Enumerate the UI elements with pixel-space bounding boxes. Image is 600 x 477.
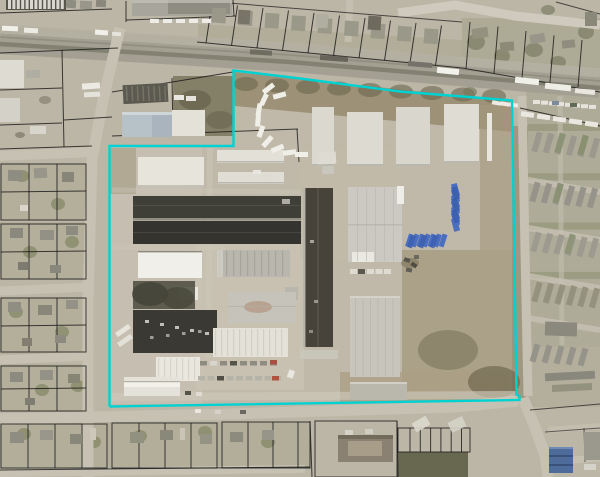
roof-rib <box>245 329 246 356</box>
trailer <box>255 114 261 126</box>
house <box>34 168 48 179</box>
driveway <box>180 428 185 440</box>
tree <box>541 5 555 15</box>
roof-edge <box>338 435 393 439</box>
white-building <box>172 110 205 136</box>
storage-unit-roof <box>26 0 29 9</box>
storage-unit-roof <box>12 0 15 9</box>
roof-ridge <box>133 205 301 206</box>
parked-car <box>195 409 201 413</box>
clutter <box>15 132 25 138</box>
trailer <box>487 137 492 149</box>
roof-edge <box>138 251 202 253</box>
roof-seam <box>549 464 573 466</box>
storage-unit-roof <box>34 0 37 9</box>
roof-edge <box>138 185 204 187</box>
warehouse <box>0 60 24 88</box>
parked-car <box>230 361 237 366</box>
house <box>10 228 23 238</box>
parked-car <box>384 269 391 274</box>
parked-car <box>202 19 211 23</box>
storage-unit-roof <box>43 0 46 9</box>
blue-gray-building <box>152 112 172 137</box>
roof-edge <box>397 186 404 204</box>
roof-rib <box>251 329 252 356</box>
roof-rib <box>281 329 282 356</box>
roof-rib <box>158 358 159 380</box>
rooftop-unit <box>310 240 314 243</box>
shed <box>20 205 28 211</box>
parked-car <box>240 361 247 366</box>
site-driveway <box>113 247 225 248</box>
parked-car <box>240 410 246 414</box>
roof-edge <box>303 188 306 347</box>
roof-rib <box>233 251 234 276</box>
house <box>423 28 438 44</box>
parked-car <box>198 376 205 381</box>
house <box>262 430 274 440</box>
building-section <box>350 382 407 400</box>
blue-roof-building <box>549 447 573 473</box>
roof-rib <box>170 358 171 380</box>
rail-car <box>112 32 121 37</box>
roof-rib <box>233 329 234 356</box>
shed <box>584 464 596 470</box>
storage-unit-roof <box>8 0 11 9</box>
parked-car <box>227 376 234 381</box>
trees <box>132 282 168 306</box>
white-building <box>138 252 202 278</box>
roof-rib <box>261 251 262 276</box>
roof-edge <box>124 381 180 382</box>
large-dark-building <box>133 310 217 353</box>
roof-rib <box>240 251 241 276</box>
cross-street <box>0 152 92 156</box>
roof-rib <box>275 251 276 276</box>
roof-edge <box>132 0 232 3</box>
roof-edge <box>350 296 400 298</box>
rooftop-unit <box>282 199 290 204</box>
rooftop-unit <box>145 320 149 323</box>
roof-rib <box>257 329 258 356</box>
roof-rib <box>221 329 222 356</box>
tree <box>65 236 79 248</box>
parked-car <box>246 376 253 381</box>
parked-car <box>367 269 374 274</box>
gray-building <box>584 432 600 460</box>
house <box>40 430 53 440</box>
roof-rib <box>275 329 276 356</box>
roof-section <box>352 252 374 262</box>
parked-car <box>176 19 185 23</box>
aerial-imagery <box>0 0 600 477</box>
roof-edge <box>217 161 284 163</box>
rooftop-unit <box>150 336 154 339</box>
parked-car <box>200 361 207 366</box>
house <box>66 0 77 8</box>
roof-gap <box>133 218 301 221</box>
roof-rib <box>268 251 269 276</box>
house <box>10 372 23 382</box>
warehouse <box>347 112 383 166</box>
clutter <box>39 96 51 104</box>
roof-rib <box>226 251 227 276</box>
roof-seam <box>385 298 386 376</box>
house <box>25 398 35 405</box>
house <box>316 14 329 29</box>
roof-edge <box>444 161 479 163</box>
roof-rib <box>176 358 177 380</box>
roof-rib <box>239 329 240 356</box>
roof-rib <box>215 329 216 356</box>
scrub-strip <box>480 105 512 250</box>
parked-car <box>272 376 279 381</box>
rooftop-unit <box>314 300 318 303</box>
trees <box>162 287 194 309</box>
house <box>66 300 78 309</box>
rail-car <box>95 30 108 36</box>
roof-seam <box>348 224 402 226</box>
dark-roof-building <box>133 196 301 218</box>
roof-rib <box>227 329 228 356</box>
warehouse <box>0 98 20 122</box>
rooftop-unit <box>182 332 186 335</box>
shed <box>365 429 373 434</box>
rooftop-unit <box>166 334 170 337</box>
roof-edge <box>396 164 430 166</box>
house <box>238 10 251 25</box>
roof-rib <box>182 358 183 380</box>
loading-dock <box>300 350 338 359</box>
roof-rib <box>269 329 270 356</box>
dark-ground-stain <box>418 330 478 370</box>
trailer <box>82 82 100 89</box>
trailer <box>186 96 196 101</box>
roof-edge <box>347 164 383 166</box>
roof-edge <box>350 382 407 384</box>
rooftop-unit <box>198 330 202 333</box>
house <box>211 8 226 24</box>
house <box>66 226 78 235</box>
shed <box>30 126 46 134</box>
courtyard <box>348 441 382 456</box>
parked-car <box>570 103 577 107</box>
house <box>40 230 54 240</box>
roof-edge <box>218 182 284 184</box>
site-driveway <box>112 190 300 192</box>
house <box>368 16 382 31</box>
house <box>160 430 173 440</box>
east-street <box>522 96 528 396</box>
parked-car <box>163 19 172 23</box>
ribbed-dark-building <box>123 83 169 104</box>
roof-edge <box>312 164 334 166</box>
shed <box>345 430 353 435</box>
trailer <box>487 113 492 125</box>
shed <box>322 166 334 175</box>
storage-unit-roof <box>52 0 55 9</box>
gray-building <box>545 321 577 336</box>
trailer <box>174 95 184 100</box>
brush <box>358 83 382 97</box>
storage-unit-roof <box>21 0 24 9</box>
roof-rib <box>194 358 195 380</box>
house <box>264 13 279 29</box>
house <box>344 21 359 37</box>
house <box>38 305 52 315</box>
wooded-area <box>398 452 468 477</box>
trailer <box>487 125 492 137</box>
house <box>50 265 61 273</box>
parked-car <box>552 101 559 105</box>
parked-car <box>260 361 267 366</box>
cross-street <box>0 356 89 360</box>
house <box>585 12 597 26</box>
ribbed-gray-building <box>217 250 290 277</box>
roof-seam <box>378 298 379 376</box>
house <box>291 15 306 31</box>
parked-car <box>208 376 215 381</box>
parked-car <box>581 104 588 108</box>
tree <box>35 384 49 396</box>
roof-edge <box>122 112 172 115</box>
storage-unit-roof <box>56 0 59 9</box>
parked-car <box>196 392 202 396</box>
warehouse <box>444 104 479 163</box>
roof-edge <box>549 447 573 449</box>
roof-rib <box>164 358 165 380</box>
canopy <box>124 383 180 387</box>
house <box>500 41 515 51</box>
parked-car <box>270 360 277 365</box>
house <box>70 434 82 444</box>
brush <box>296 80 320 94</box>
rooftop-unit <box>160 323 164 326</box>
parked-car <box>250 361 257 366</box>
parked-car <box>533 100 540 104</box>
shed <box>26 70 40 78</box>
house <box>80 1 92 9</box>
house <box>55 335 66 343</box>
rooftop-unit <box>205 332 209 335</box>
trees <box>206 111 234 129</box>
roof-seam <box>549 455 573 457</box>
house <box>200 434 212 444</box>
small-white-building <box>318 152 337 165</box>
roof-seam <box>370 298 371 376</box>
parked-car <box>210 361 217 366</box>
house <box>397 26 412 42</box>
parked-car <box>215 410 221 414</box>
rooftop-unit <box>190 329 194 332</box>
tree <box>525 43 543 57</box>
trailer <box>84 92 100 98</box>
house <box>62 172 74 182</box>
storage-unit-roof <box>48 0 51 9</box>
brush <box>234 77 258 91</box>
warehouse <box>138 157 204 187</box>
rail-car <box>24 28 38 34</box>
cross-street <box>0 287 90 291</box>
trailer <box>295 152 308 157</box>
driveway <box>90 428 96 440</box>
parked-car <box>263 174 271 178</box>
parked-car <box>220 361 227 366</box>
roof-ridge <box>228 306 296 307</box>
roof-rib <box>282 251 283 276</box>
house <box>230 432 243 442</box>
storage-unit-roof <box>17 0 20 9</box>
tree <box>51 198 65 210</box>
scrub-patch <box>110 148 136 194</box>
roof-ridge <box>317 188 319 347</box>
parked-car <box>265 376 272 381</box>
house <box>40 370 53 380</box>
trailer <box>487 149 492 161</box>
white-ribbed-building <box>213 328 288 357</box>
house <box>22 338 32 346</box>
parked-car <box>189 19 198 23</box>
house <box>8 170 22 181</box>
parked-car <box>589 105 596 109</box>
roof-rib <box>254 251 255 276</box>
rail-car <box>2 26 18 32</box>
parked-car <box>217 376 224 381</box>
storage-unit-roof <box>30 0 33 9</box>
storage-unit-roof <box>39 0 42 9</box>
house <box>18 262 28 270</box>
parked-car <box>150 19 159 23</box>
roof-rib <box>188 358 189 380</box>
storage-unit-roof <box>61 0 64 9</box>
tree <box>463 87 477 97</box>
roof-rib <box>263 329 264 356</box>
parked-car <box>255 376 262 381</box>
roof-seam <box>355 298 356 376</box>
rooftop-unit <box>175 326 179 329</box>
parked-car <box>185 391 191 395</box>
house <box>130 432 144 443</box>
warehouse <box>396 107 430 166</box>
roof-seam <box>393 298 394 376</box>
roof-rib <box>247 251 248 276</box>
parked-car <box>376 269 383 274</box>
house <box>562 39 576 48</box>
roof-ridge <box>133 232 301 233</box>
house <box>8 302 21 312</box>
parked-car <box>236 376 243 381</box>
parked-car <box>253 170 261 174</box>
house <box>96 0 106 7</box>
parked-car <box>350 269 357 274</box>
aerial-map-viewport[interactable] <box>0 0 600 477</box>
parked-car <box>541 101 548 105</box>
rooftop-unit <box>309 330 313 333</box>
house <box>10 432 24 443</box>
house <box>68 374 80 383</box>
roof-edge <box>217 250 223 277</box>
boat <box>414 255 419 259</box>
roof-seam <box>363 298 364 376</box>
parked-car <box>358 269 365 274</box>
